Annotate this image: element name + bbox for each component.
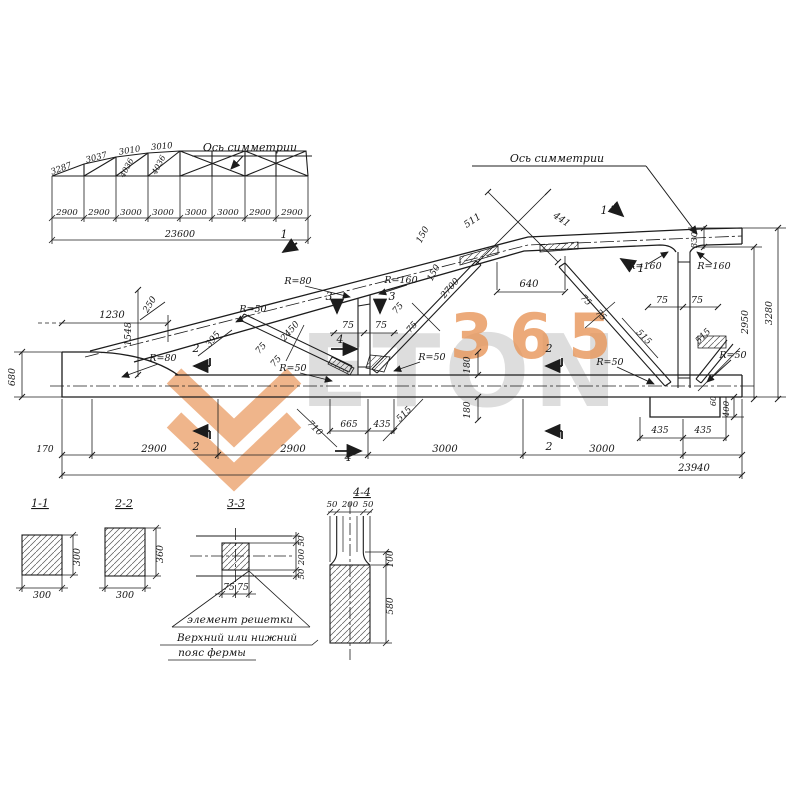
callout-chord-line2: пояс фермы <box>178 647 246 659</box>
dim-label: R=50 <box>278 363 306 374</box>
dim-label: 75 <box>223 583 235 593</box>
dim-label: 300 <box>33 590 51 601</box>
dim-label: 3010 <box>118 144 142 157</box>
dim-label: 710 <box>305 419 325 438</box>
dim-label: 23600 <box>164 229 195 240</box>
dim-label: 4 <box>336 333 344 346</box>
dim-label: 2 <box>192 440 200 453</box>
dim-label: 75 <box>254 341 269 356</box>
dim-label: R=160 <box>696 261 730 272</box>
dim-label: 3010 <box>151 141 174 153</box>
dim-label: 2900 <box>87 208 110 218</box>
dim-label: 3 <box>389 290 396 303</box>
dim-label: R=50 <box>595 357 623 368</box>
dim-label: R=50 <box>417 352 445 363</box>
dim-label: 1230 <box>99 310 125 321</box>
dim-label: R=80 <box>283 276 311 287</box>
dim-label: 1 <box>601 204 608 217</box>
dim-label: 1 <box>281 228 288 241</box>
dim-label: 1548 <box>123 322 134 346</box>
dim-label: 180 <box>463 356 473 373</box>
dim-label: 2950 <box>740 310 751 335</box>
dim-label: 3000 <box>432 444 458 455</box>
callout-lattice-element: элемент решетки <box>187 614 293 626</box>
dim-label: 515 <box>395 405 414 424</box>
symmetry-axis-label: Ось симметрии <box>203 141 297 154</box>
dim-label: 360 <box>155 545 166 563</box>
dim-label: 2900 <box>140 444 167 455</box>
dim-label: 2900 <box>280 208 303 218</box>
drawing-canvas: Ось симметрии328730373010301040364036290… <box>0 0 800 800</box>
dim-label: R=160 <box>627 261 661 272</box>
section-title-1-1: 1-1 <box>31 497 49 510</box>
dim-label: 2 <box>192 342 200 355</box>
dim-label: 75 <box>691 295 703 306</box>
dim-label: 75 <box>375 320 387 331</box>
dim-label: 2 <box>545 342 553 355</box>
dim-label: 441 <box>550 210 572 230</box>
dim-label: 4 <box>344 451 352 464</box>
dim-label: 50 <box>327 500 338 510</box>
dim-label: 75 <box>342 320 354 331</box>
dim-label: 2900 <box>279 444 306 455</box>
section-title-2-2: 2-2 <box>114 497 133 510</box>
main-truss-labels: Ось симметрии68012301548250395R=80R=5024… <box>7 152 775 474</box>
dim-label: 2900 <box>248 208 271 218</box>
dim-label: 3000 <box>185 208 207 218</box>
dim-label: 3000 <box>217 208 239 218</box>
dim-label: 150 <box>426 263 443 283</box>
dim-label: 435 <box>372 420 390 430</box>
dim-label: 3000 <box>152 208 174 218</box>
dim-label: 75 <box>656 295 668 306</box>
dim-label: 435 <box>693 426 711 436</box>
dim-label: R=160 <box>383 275 417 286</box>
dim-label: 180 <box>463 401 473 418</box>
dim-label: 75 <box>237 583 249 593</box>
dim-label: 300 <box>72 548 83 566</box>
dim-label: 300 <box>116 590 134 601</box>
dim-label: 640 <box>519 279 539 290</box>
dim-label: 250 <box>141 295 159 316</box>
dim-label: 511 <box>462 211 483 230</box>
dim-label: 150 <box>415 225 432 245</box>
section-title-4-4: 4-4 <box>352 486 371 499</box>
dim-label: 580 <box>386 597 396 614</box>
dim-label: 3000 <box>589 444 615 455</box>
dim-label: 2 <box>545 440 553 453</box>
dim-label: R=50 <box>238 304 266 315</box>
dim-label: 435 <box>650 426 668 436</box>
dim-label: 330 <box>690 231 700 248</box>
dim-label: R=80 <box>148 353 176 364</box>
dim-label: 400 <box>722 400 732 418</box>
dim-label: 665 <box>340 420 357 430</box>
dim-label: 60 <box>709 396 718 406</box>
truss-drawing-sheet: ETON 365 <box>0 0 800 800</box>
dim-label: 100 <box>386 550 396 567</box>
dim-label: 200 <box>341 500 359 510</box>
dim-label: 3 <box>326 290 333 303</box>
dim-label: 50 <box>297 568 307 579</box>
dim-label: 75 <box>391 301 406 316</box>
dim-label: 3000 <box>120 208 142 218</box>
dim-label: 2900 <box>55 208 78 218</box>
dim-label: 4036 <box>150 154 168 177</box>
dim-label: 50 <box>363 500 374 510</box>
dim-label: 200 <box>297 548 307 566</box>
dim-label: R=50 <box>718 350 746 361</box>
dim-label: 50 <box>297 535 307 546</box>
dim-label: 23940 <box>677 463 710 474</box>
dim-label: 3287 <box>49 161 73 178</box>
dim-label: 170 <box>36 445 53 455</box>
dim-label: 515 <box>634 328 653 347</box>
dim-label: 75 <box>578 293 593 308</box>
dim-label: 680 <box>7 368 18 386</box>
callout-chord-line1: Верхний или нижний <box>176 632 297 644</box>
dim-label: 3280 <box>764 301 775 325</box>
symmetry-axis-label: Ось симметрии <box>510 152 604 165</box>
section-title-3-3: 3-3 <box>227 497 245 510</box>
dim-label: 395 <box>204 330 223 350</box>
